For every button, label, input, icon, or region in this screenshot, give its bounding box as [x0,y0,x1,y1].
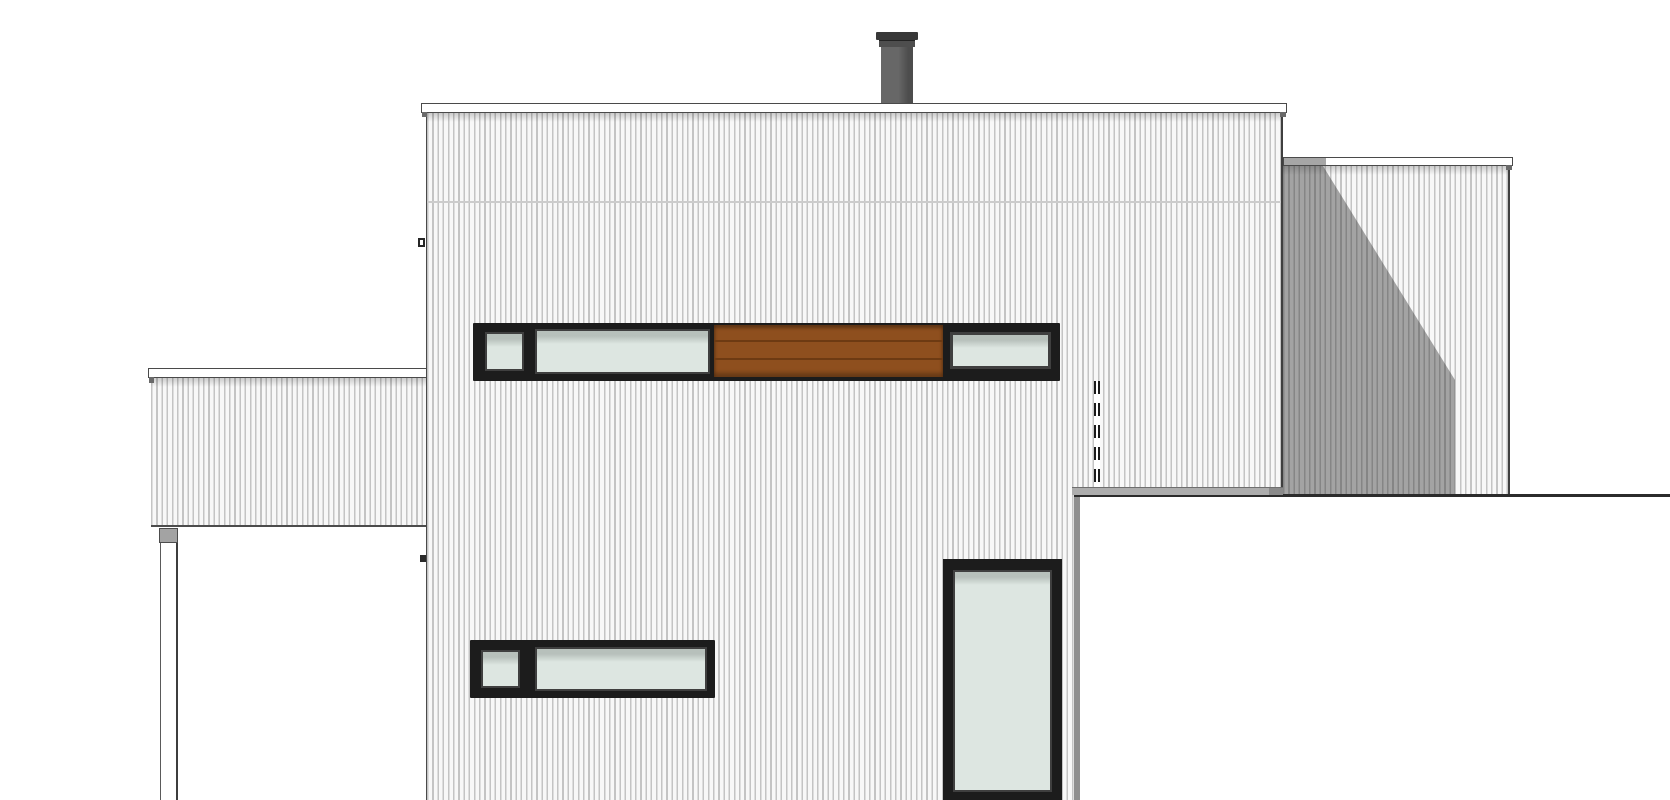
chimney-cap [876,32,918,40]
parapet-flashing [1072,487,1283,495]
chimney-collar [879,40,915,47]
extension-fascia-lip [1506,165,1512,170]
fascia-lip-left [422,112,427,117]
carport-post [160,543,178,800]
wall-bracket-upper [418,238,425,247]
upper-window-band [473,323,1060,381]
tall-window-frame [943,559,1062,800]
chimney-flue [881,47,913,108]
elevation-drawing [0,0,1670,800]
floor-line [427,201,1281,203]
upper-band-long-window [535,329,710,374]
main-roof-fascia [421,103,1287,113]
fascia-lip-right [1280,112,1286,117]
wood-board-gap [714,358,943,360]
lower-band-long-window [535,647,707,691]
extension-roof-fascia [1283,157,1513,166]
wall-bracket-lower [420,555,426,562]
wing-fascia-lip [149,377,154,383]
lower-window-band [470,640,715,698]
tall-window-glass [953,570,1052,792]
wood-slat-panel [714,325,943,377]
extension-siding [1283,166,1510,494]
extension-fascia-shadow [1284,158,1326,165]
foreground-building [1074,487,1670,800]
wing-roof-fascia [148,368,427,378]
carport-post-cap [159,528,178,543]
parapet-flashing-end [1269,488,1283,495]
extension-cast-shadow [1283,166,1508,494]
upper-band-small-window [485,332,524,371]
hidden-edge-dashed-line [1094,381,1100,487]
lower-band-small-window [481,650,520,688]
wing-siding [151,378,427,527]
foreground-left-shade [1074,487,1080,800]
foreground-face [1080,497,1670,800]
wood-board-gap [714,340,943,342]
upper-band-right-window [950,332,1051,369]
